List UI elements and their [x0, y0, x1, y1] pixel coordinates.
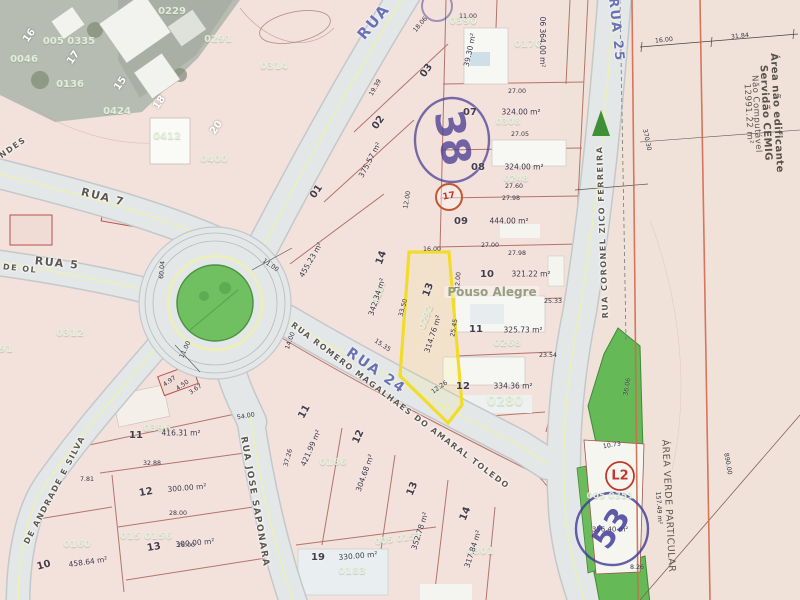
map-label-dim: 157.49 m²	[654, 491, 663, 524]
map-label-area: 455.23 m²	[298, 241, 324, 278]
map-label-dim: 7.81	[80, 477, 94, 483]
map-label-wm: 005 0351	[587, 493, 634, 502]
map-label-wm: 0268	[493, 339, 521, 349]
map-label-area: 375.57 m²	[358, 141, 383, 179]
street-label-andrade-silva: DE ANDRADE E SILVA	[23, 434, 87, 545]
street-label-jose-saponara: RUA JOSE SAPONARA	[238, 436, 270, 568]
map-label-dim: 37.26	[284, 448, 295, 467]
map-text-layer: RUARUA 7RUA 5DE OLRUA 24RUA ROMERO MAGAL…	[0, 0, 800, 600]
map-label-dim: 27.60	[505, 184, 523, 190]
map-label-wm: 015 0156	[120, 532, 172, 542]
map-label-wm: 91	[0, 345, 13, 355]
street-label-zico-ferreira: RUA CORONEL ZICO FERREIRA	[596, 145, 610, 318]
map-label-area: 330.00 m²	[338, 551, 377, 562]
stamp-53: 53	[588, 503, 637, 554]
map-label-wm: 0046	[10, 55, 38, 65]
map-label-area: 334.36 m²	[494, 382, 533, 390]
map-label-dim: 16.00	[423, 247, 441, 253]
map-label-area: 321.22 m²	[512, 270, 551, 278]
map-label-lot: 11	[129, 431, 143, 441]
street-label-rua: RUA	[355, 2, 393, 43]
map-label-dim: 11.00	[261, 258, 279, 274]
map-label-dim: 23.54	[539, 353, 557, 359]
highlighted-lot-number: 13	[422, 282, 436, 299]
map-label-wlot: 20	[209, 119, 225, 136]
street-label-ndes: NDES	[0, 136, 28, 160]
map-label-area: 06 364.00 m²	[538, 17, 546, 68]
map-label-lot: 10	[480, 270, 494, 280]
map-label-wm: 0186	[319, 458, 347, 468]
map-label-dim: 28.00	[177, 543, 195, 549]
map-label-wlot: 15	[113, 75, 129, 92]
map-label-dim: 15.35	[373, 338, 392, 353]
cemig-note-area: 12991.22 m²	[742, 84, 754, 145]
street-label-rua-5: RUA 5	[34, 255, 79, 271]
map-label-area: 416.31 m²	[162, 429, 201, 437]
map-label-wm: 0291	[204, 35, 232, 45]
map-label-dim: 36.06	[623, 378, 632, 397]
map-label-lot: 11	[297, 404, 312, 421]
map-label-dim: 27.00	[508, 89, 526, 95]
map-label-wm: 0400	[200, 155, 228, 165]
map-label-lot: 12	[138, 487, 153, 499]
map-label-area: 342.34 m²	[367, 277, 386, 316]
map-label-wm: 0424	[103, 107, 131, 117]
map-label-dim: 16.00	[655, 37, 674, 45]
map-label-dim: 18.06	[413, 16, 429, 34]
street-label-de-ol: DE OL	[3, 263, 38, 275]
map-label-dim: 19.39	[369, 79, 383, 98]
map-label-lot: 12	[456, 382, 470, 392]
map-label-wlot: 17	[66, 49, 82, 66]
stamp-l2: L2	[611, 470, 628, 483]
map-label-dim: 60.04	[159, 261, 167, 280]
map-label-lot: 08	[471, 163, 485, 173]
map-label-lot: 09	[454, 217, 468, 227]
map-label-dim: 12.00	[403, 191, 412, 210]
area-verde-label: ÁREA VERDE PARTICULAR	[660, 439, 676, 572]
map-label-dim: 14.00	[285, 331, 297, 350]
map-label-lot: 14	[459, 506, 473, 523]
map-label-wm: 0312	[56, 329, 84, 339]
map-label-wm: 005 0335	[43, 37, 95, 47]
map-label-lot: 19	[311, 553, 325, 563]
map-label-wm: 0229	[158, 7, 186, 17]
map-label-wlot: 16	[22, 27, 38, 44]
map-label-dim: 890.00	[722, 453, 732, 476]
map-label-lot: 01	[309, 183, 325, 200]
map-label-dim: 370.30	[641, 129, 652, 152]
map-label-dim: 10.73	[603, 441, 622, 450]
map-label-dim: 27.05	[511, 132, 529, 138]
stamp-17: 17	[442, 191, 456, 202]
map-label-dim: 8.26	[630, 565, 644, 571]
map-label-wm: 0136	[56, 80, 84, 90]
map-label-dim: 32.88	[143, 461, 161, 467]
map-label-area: 300.00 m²	[167, 483, 206, 494]
map-label-area: 324.00 m²	[505, 163, 544, 171]
map-label-lot: 02	[371, 114, 387, 131]
map-label-area: 458.64 m²	[68, 556, 108, 569]
map-label-dim: 27.00	[481, 243, 499, 249]
map-label-dim: 11.00	[459, 14, 477, 20]
map-label-dim: 27.98	[508, 251, 526, 257]
map-label-area: 325.73 m²	[504, 326, 543, 334]
map-label-area: 444.00 m²	[490, 217, 529, 225]
map-label-area: 352.78 m²	[410, 511, 429, 550]
map-label-wm: 0160	[63, 540, 91, 550]
map-label-dim: 25.45	[450, 319, 459, 338]
map-label-wlot: 18	[152, 94, 168, 111]
stamp-38: 38	[427, 107, 476, 169]
map-label-dim: 31.84	[731, 33, 750, 41]
map-label-dim: 25.33	[544, 299, 562, 305]
map-label-wm: 0314	[260, 62, 288, 72]
map-label-lot: 03	[419, 62, 435, 79]
street-label-rua-25: RUA 25	[606, 0, 626, 63]
map-label-dim: 11.00	[179, 340, 192, 359]
map-label-dim: 27.98	[502, 196, 520, 202]
map-label-area: 39.30 m²	[463, 33, 477, 68]
map-label-area: 324.00 m²	[502, 108, 541, 116]
cadastral-map-viewport: RUARUA 7RUA 5DE OLRUA 24RUA ROMERO MAGAL…	[0, 0, 800, 600]
map-label-dim: 3.67	[188, 383, 203, 396]
map-label-lot: 11	[469, 325, 483, 335]
map-label-lot: 13	[146, 542, 161, 554]
map-label-wm: 0412	[153, 132, 181, 142]
map-label-dim: 33.50	[399, 298, 410, 317]
map-label-lot: 12	[352, 429, 367, 446]
map-label-wmbig: 0280	[487, 396, 523, 409]
map-label-wm: 0183	[338, 567, 366, 577]
map-label-lot: 10	[36, 559, 52, 572]
map-label-dim: 12.26	[431, 380, 449, 396]
map-label-wm: 0308	[495, 119, 520, 128]
map-label-area: 304.68 m²	[355, 453, 375, 492]
map-label-lot: 13	[406, 481, 420, 498]
street-label-rua-7: RUA 7	[80, 186, 126, 207]
map-label-lot: 14	[375, 250, 389, 267]
map-label-dim: 28.00	[169, 511, 187, 517]
map-label-dim: 54.00	[237, 412, 256, 421]
